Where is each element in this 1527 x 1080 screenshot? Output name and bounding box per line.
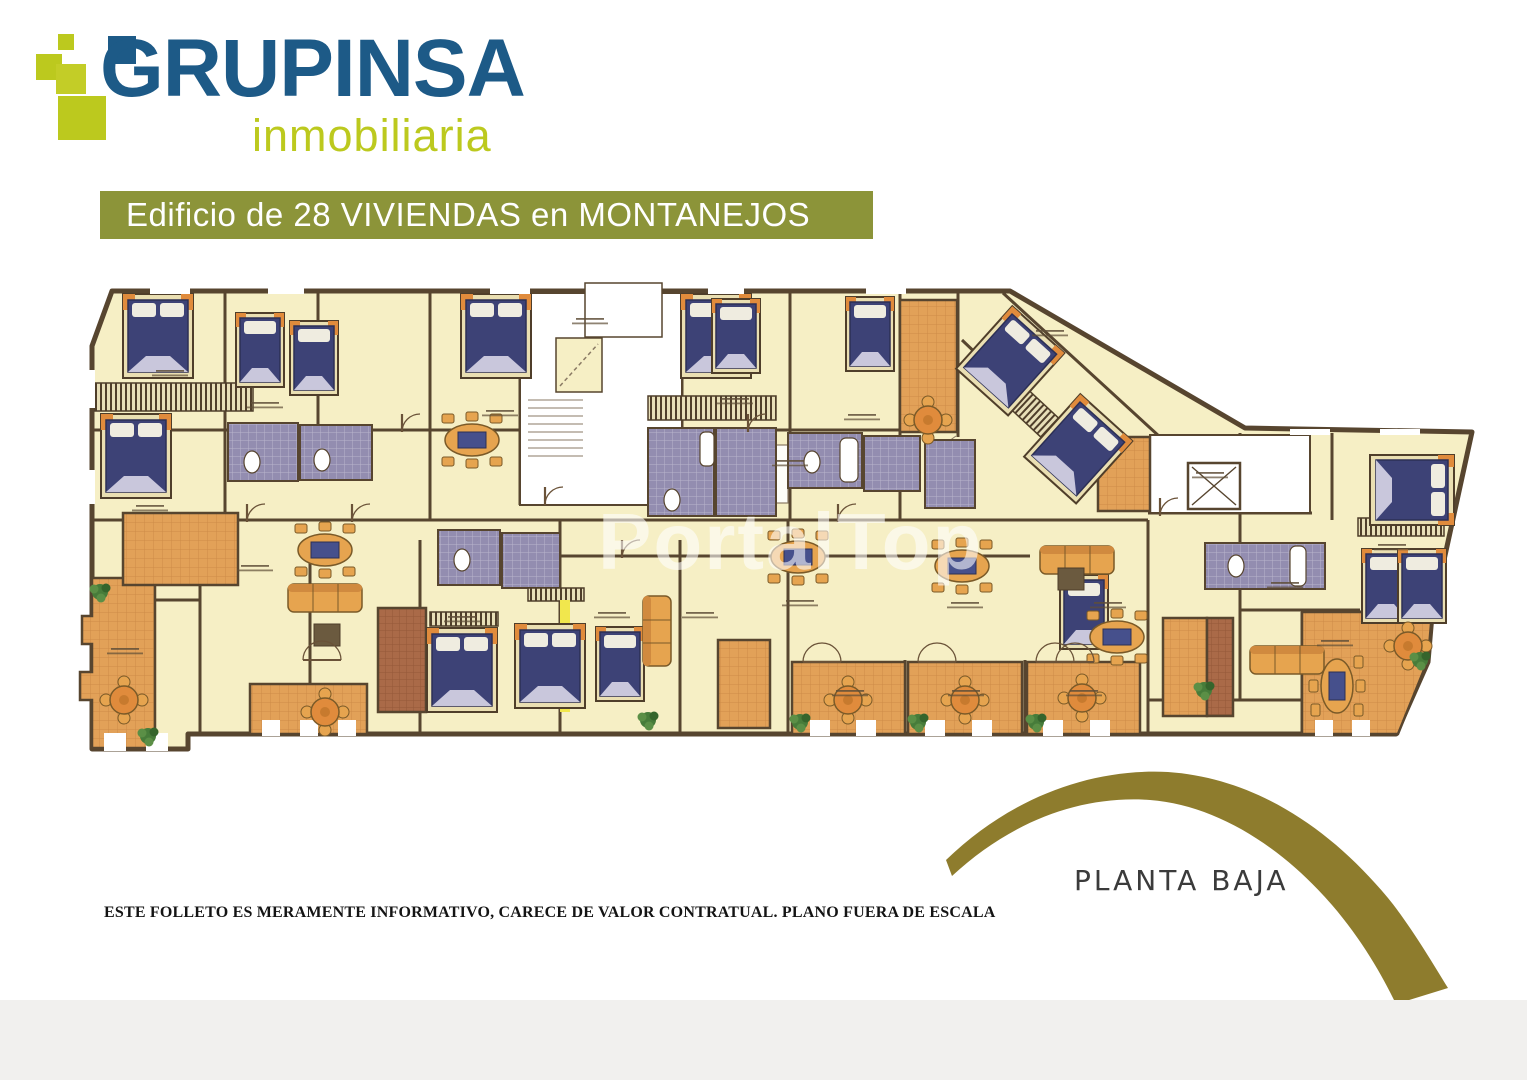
brochure-page: GRUPINSA inmobiliaria Edificio de 28 VIV… (0, 0, 1527, 1080)
footer-band (0, 1000, 1527, 1080)
disclaimer-text: ESTE FOLLETO ES MERAMENTE INFORMATIVO, C… (104, 904, 995, 922)
caption-planta-baja: PLANTA BAJA (1074, 864, 1289, 897)
